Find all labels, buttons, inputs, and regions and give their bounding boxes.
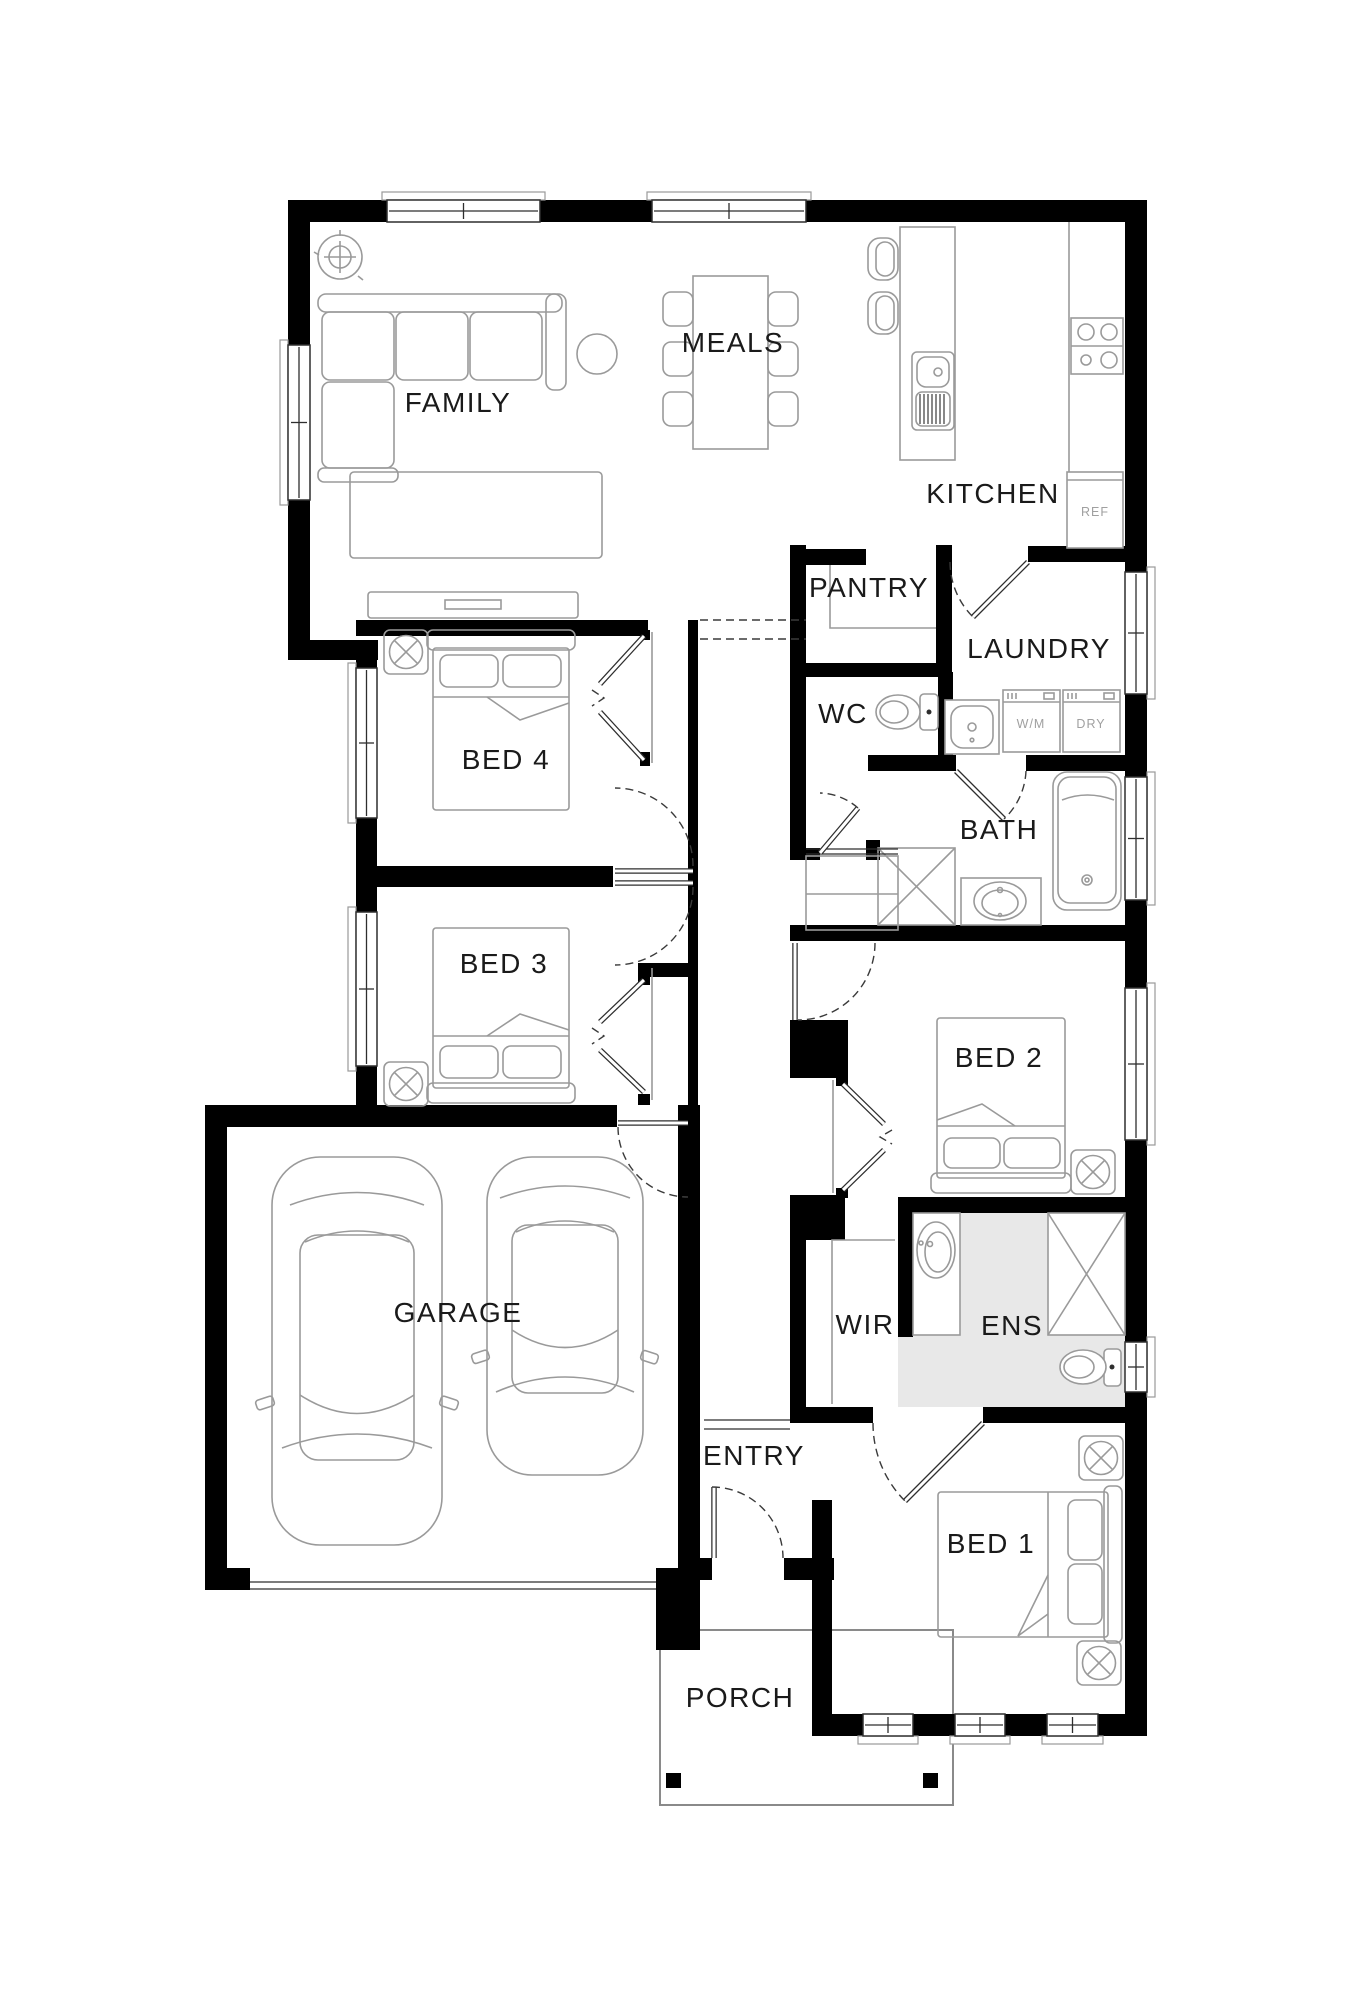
room-label-bed3: BED 3 (460, 948, 548, 980)
room-label-kitchen: KITCHEN (926, 478, 1059, 510)
window (647, 192, 811, 222)
ceiling-fan-icon (1079, 1436, 1123, 1480)
ceiling-fan-icon (1077, 1641, 1121, 1685)
window (348, 907, 377, 1071)
ceiling-fan-icon (384, 1062, 428, 1106)
room-label-pantry: PANTRY (809, 572, 929, 604)
room-label-bed4: BED 4 (462, 744, 550, 776)
room-label-family: FAMILY (405, 387, 512, 419)
window (858, 1714, 918, 1744)
window (1042, 1714, 1103, 1744)
window (950, 1714, 1010, 1744)
room-label-entry: ENTRY (703, 1440, 805, 1472)
room-label-bed1: BED 1 (947, 1528, 1035, 1560)
floor-plan-drawing (0, 0, 1349, 2006)
dining-table (693, 276, 768, 449)
bed4-bed (427, 630, 575, 810)
family-tv-unit (368, 592, 578, 618)
family-rug (350, 472, 602, 558)
family-downlight-icon (314, 230, 363, 280)
wc-toilet (876, 694, 938, 730)
washing-machine-label: W/M (1017, 717, 1046, 731)
bath-vanity (961, 878, 1041, 925)
room-label-porch: PORCH (686, 1682, 795, 1714)
room-label-ens: ENS (981, 1310, 1043, 1342)
window (1125, 1337, 1155, 1397)
window (1125, 567, 1155, 699)
ens-shower (1048, 1213, 1125, 1335)
room-label-garage: GARAGE (394, 1297, 523, 1329)
ceiling-fan-icon (1071, 1150, 1115, 1194)
family-side-table (577, 334, 617, 374)
kitchen-sink (912, 352, 954, 430)
bath-shower (878, 848, 955, 925)
laundry-tub (945, 700, 999, 754)
room-label-meals: MEALS (682, 327, 784, 359)
fridge-label: REF (1081, 505, 1109, 519)
dryer-label: DRY (1076, 717, 1105, 731)
room-label-bath: BATH (960, 814, 1039, 846)
bed2-wardrobe (833, 1080, 892, 1193)
room-label-bed2: BED 2 (955, 1042, 1043, 1074)
ceiling-fan-icon (384, 630, 428, 674)
window (1125, 983, 1155, 1145)
bathtub (1053, 772, 1121, 910)
kitchen-stools (868, 238, 898, 334)
floor-plan: FAMILY MEALS KITCHEN PANTRY LAUNDRY WC B… (0, 0, 1349, 2006)
ens-vanity (913, 1213, 960, 1335)
window (348, 663, 377, 823)
cooktop (1071, 318, 1123, 374)
window (280, 340, 310, 505)
bed4-wardrobe (592, 632, 652, 763)
ens-toilet (1060, 1349, 1121, 1386)
room-label-wir: WIR (836, 1309, 895, 1341)
garage-car-left (255, 1157, 459, 1545)
bed3-wardrobe (592, 968, 652, 1100)
room-label-wc: WC (818, 698, 868, 730)
bed1-bed (938, 1486, 1122, 1643)
room-label-laundry: LAUNDRY (967, 633, 1111, 665)
garage-panel-door (250, 1582, 656, 1589)
window (382, 192, 545, 222)
window (1125, 772, 1155, 905)
